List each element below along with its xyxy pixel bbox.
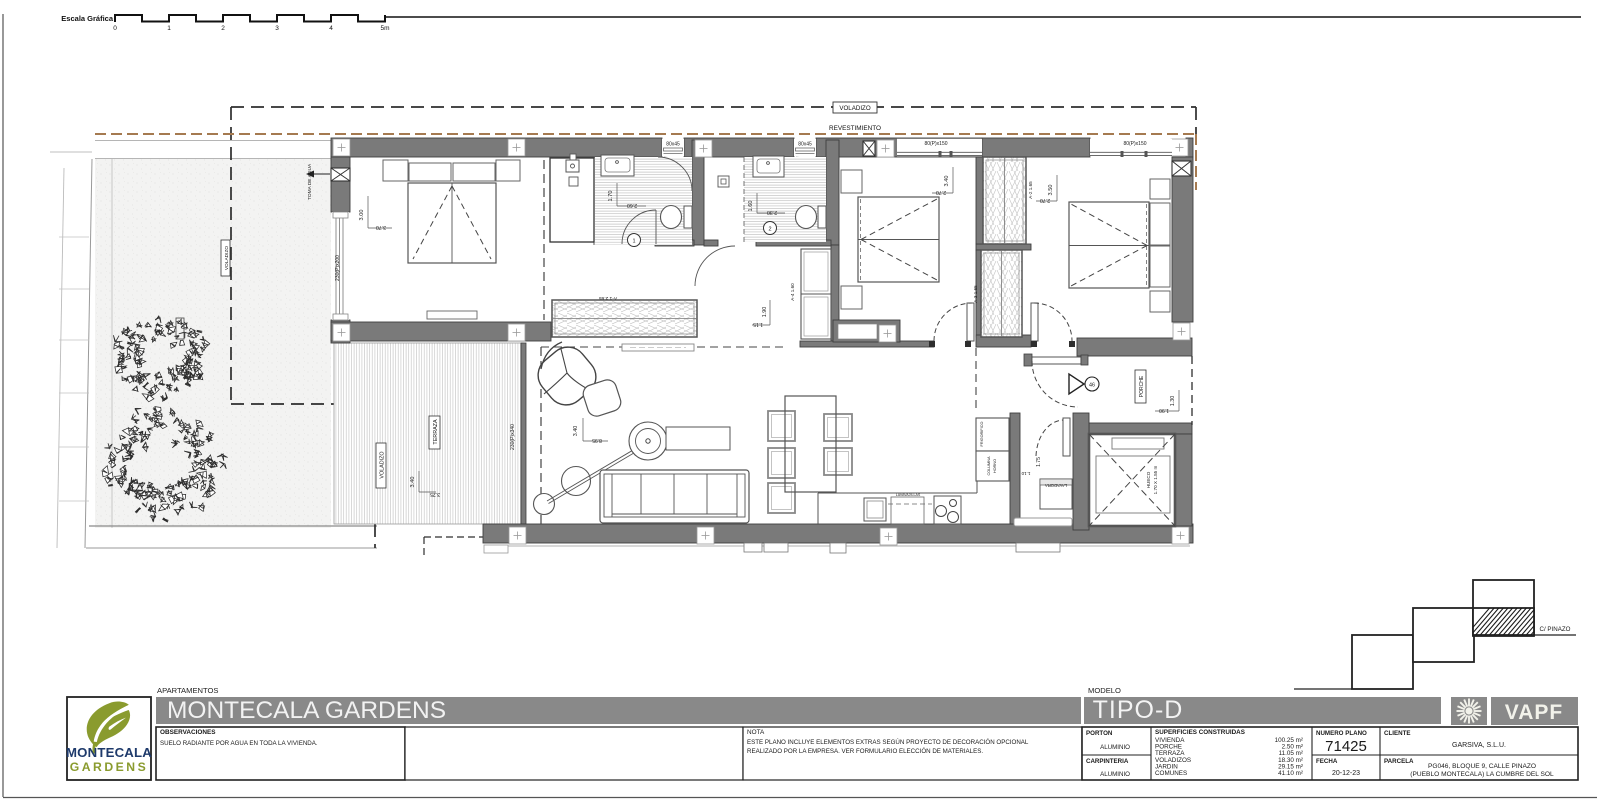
- svg-text:1: 1: [167, 25, 171, 32]
- svg-text:1.90: 1.90: [762, 307, 768, 318]
- svg-text:HORNO: HORNO: [993, 459, 997, 473]
- svg-text:A-3 1.65: A-3 1.65: [973, 285, 978, 303]
- svg-text:TERRAZA: TERRAZA: [433, 419, 439, 445]
- svg-text:VOLADIZO: VOLADIZO: [839, 105, 870, 112]
- svg-text:1: 1: [632, 239, 635, 245]
- svg-text:8.95: 8.95: [592, 437, 602, 443]
- svg-text:3: 3: [275, 25, 279, 32]
- svg-text:2.30: 2.30: [767, 209, 777, 215]
- svg-text:MONTECALA GARDENS: MONTECALA GARDENS: [167, 697, 446, 724]
- svg-text:1.30: 1.30: [1170, 396, 1176, 407]
- svg-text:41.10 m²: 41.10 m²: [1278, 770, 1303, 777]
- svg-text:3.00: 3.00: [359, 210, 365, 221]
- svg-text:46: 46: [1089, 383, 1095, 389]
- svg-text:1.70 X 1.55 m: 1.70 X 1.55 m: [1153, 466, 1158, 495]
- svg-text:71425: 71425: [1325, 738, 1367, 755]
- svg-text:NOTA: NOTA: [747, 729, 765, 736]
- svg-text:2.60: 2.60: [627, 202, 637, 208]
- svg-text:GARSIVA, S.L.U.: GARSIVA, S.L.U.: [1452, 742, 1506, 749]
- svg-text:LAVAVAJILLAS: LAVAVAJILLAS: [896, 493, 921, 497]
- svg-text:ESTE PLANO INCLUYE ELEMENTOS E: ESTE PLANO INCLUYE ELEMENTOS EXTRAS SEGÚ…: [747, 739, 1029, 746]
- svg-text:REVESTIMIENTO: REVESTIMIENTO: [829, 125, 881, 132]
- svg-text:APARTAMENTOS: APARTAMENTOS: [157, 686, 218, 695]
- svg-text:3.40: 3.40: [410, 477, 416, 488]
- svg-text:VAPF: VAPF: [1505, 701, 1563, 724]
- svg-text:PARCELA: PARCELA: [1384, 758, 1414, 765]
- svg-text:Escala Gráfica: Escala Gráfica: [61, 14, 114, 23]
- svg-text:VOLADIZO: VOLADIZO: [224, 246, 230, 271]
- svg-text:NUMERO PLANO: NUMERO PLANO: [1316, 730, 1367, 737]
- svg-text:TIPO-D: TIPO-D: [1093, 696, 1184, 724]
- svg-text:SUPERFICIES CONSTRUIDAS: SUPERFICIES CONSTRUIDAS: [1155, 729, 1245, 736]
- svg-text:1.90: 1.90: [1159, 407, 1169, 413]
- svg-text:C/ PINAZO: C/ PINAZO: [1540, 626, 1571, 633]
- svg-text:80x45: 80x45: [798, 142, 812, 148]
- svg-text:SUELO RADIANTE POR AGUA EN TOD: SUELO RADIANTE POR AGUA EN TODA LA VIVIE…: [160, 740, 318, 747]
- svg-text:MODELO: MODELO: [1088, 686, 1121, 695]
- svg-text:PORCHE: PORCHE: [1139, 375, 1145, 397]
- svg-text:TOMA DE AGUA: TOMA DE AGUA: [307, 163, 313, 200]
- svg-text:MONTECALA: MONTECALA: [66, 745, 152, 760]
- svg-text:GARDENS: GARDENS: [70, 760, 148, 774]
- svg-text:80x45: 80x45: [666, 142, 680, 148]
- svg-text:PG046, BLOQUE 9, CALLE PINAZO: PG046, BLOQUE 9, CALLE PINAZO: [1428, 763, 1536, 770]
- svg-text:20-12-23: 20-12-23: [1332, 770, 1360, 777]
- svg-text:2.70: 2.70: [936, 189, 946, 195]
- svg-text:COLUMNA: COLUMNA: [987, 456, 991, 475]
- svg-text:A-2 1.65: A-2 1.65: [1028, 181, 1033, 199]
- svg-text:ALUMINIO: ALUMINIO: [1100, 771, 1130, 778]
- svg-text:FECHA: FECHA: [1316, 758, 1338, 765]
- svg-text:A-4 1.60: A-4 1.60: [790, 283, 795, 301]
- svg-text:2: 2: [221, 25, 225, 32]
- svg-text:3.50: 3.50: [1048, 185, 1054, 196]
- svg-text:1.70: 1.70: [608, 191, 614, 202]
- svg-text:80(P)x150: 80(P)x150: [924, 141, 947, 147]
- svg-text:5m: 5m: [380, 25, 389, 32]
- svg-text:2.70: 2.70: [1040, 197, 1050, 203]
- svg-text:230(P)x340: 230(P)x340: [510, 424, 516, 450]
- svg-text:COMUNES: COMUNES: [1155, 770, 1187, 777]
- svg-text:3.70: 3.70: [376, 224, 386, 230]
- svg-text:1.15: 1.15: [753, 321, 763, 327]
- svg-text:VOLADIZO: VOLADIZO: [380, 451, 386, 478]
- svg-text:2: 2: [768, 227, 771, 233]
- svg-text:3.40: 3.40: [573, 426, 579, 437]
- svg-text:(PUEBLO MONTECALA) LA CUMBRE D: (PUEBLO MONTECALA) LA CUMBRE DEL SOL: [1410, 771, 1554, 778]
- svg-text:0: 0: [113, 25, 117, 32]
- svg-text:CLIENTE: CLIENTE: [1384, 730, 1410, 737]
- svg-text:1.75: 1.75: [1036, 457, 1042, 467]
- svg-text:1.60: 1.60: [748, 201, 754, 212]
- svg-text:230(P)x200: 230(P)x200: [335, 255, 341, 281]
- svg-text:A-1 2.65: A-1 2.65: [599, 295, 617, 301]
- svg-text:1.10: 1.10: [1021, 471, 1030, 476]
- svg-text:4: 4: [329, 25, 333, 32]
- svg-text:REALIZADO POR LA EMPRESA. VER: REALIZADO POR LA EMPRESA. VER FORMULARIO…: [747, 748, 983, 755]
- svg-text:CARPINTERIA: CARPINTERIA: [1086, 758, 1129, 765]
- svg-text:3.40: 3.40: [944, 176, 950, 187]
- svg-text:ALUMINIO: ALUMINIO: [1100, 744, 1130, 751]
- svg-text:OBSERVACIONES: OBSERVACIONES: [160, 729, 216, 736]
- svg-text:80(P)x150: 80(P)x150: [1123, 141, 1146, 147]
- svg-text:FRIGORIFICO: FRIGORIFICO: [980, 422, 984, 447]
- svg-text:PORTON: PORTON: [1086, 730, 1113, 737]
- svg-text:3.25: 3.25: [430, 491, 440, 497]
- svg-text:LAVADORA: LAVADORA: [1045, 483, 1067, 488]
- svg-text:HUECO: HUECO: [1146, 471, 1151, 488]
